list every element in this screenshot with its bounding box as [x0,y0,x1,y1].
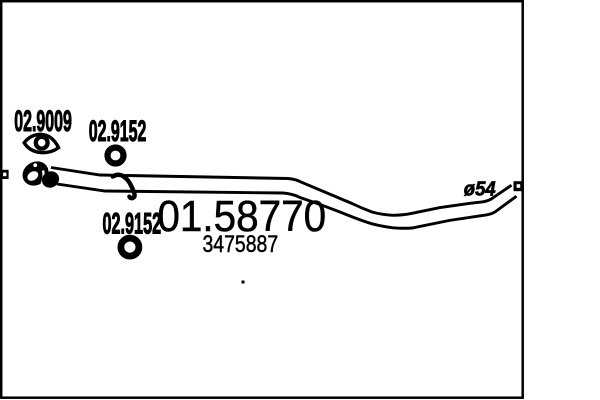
svg-text:3475887: 3475887 [203,230,279,257]
svg-text:02.9152: 02.9152 [89,116,147,148]
svg-text:ø54: ø54 [464,178,496,201]
